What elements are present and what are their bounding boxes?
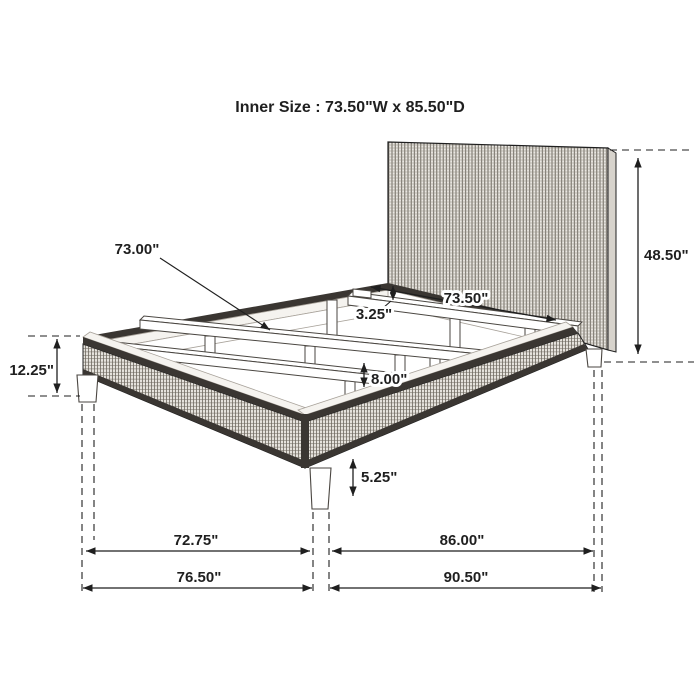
figure-title: Inner Size : 73.50"W x 85.50"D [235,99,465,116]
label-overall-width: 76.50" [177,569,222,586]
front-corner-edge [301,414,309,468]
label-inner-width: 73.50" [444,290,489,307]
corner-leg-left [77,375,98,402]
label-leg-height: 5.25" [361,469,397,486]
label-clearance: 8.00" [371,371,407,388]
label-overall-depth: 90.50" [444,569,489,586]
label-slat-length: 73.00" [115,241,160,258]
label-side-between-legs: 86.00" [440,532,485,549]
slat-bracket [353,289,371,298]
bed-dimension-diagram: Inner Size : 73.50"W x 85.50"D 73.00" 73… [0,0,700,700]
diagram-canvas: Inner Size : 73.50"W x 85.50"D 73.00" 73… [0,0,700,700]
headboard-side-edge [608,148,616,352]
label-platform-height: 12.25" [9,362,54,379]
corner-leg-front [310,468,331,509]
corner-leg-rear-right [586,349,602,367]
label-slat-recess: 3.25" [356,306,392,323]
label-foot-between-legs: 72.75" [174,532,219,549]
label-headboard-height: 48.50" [644,247,689,264]
